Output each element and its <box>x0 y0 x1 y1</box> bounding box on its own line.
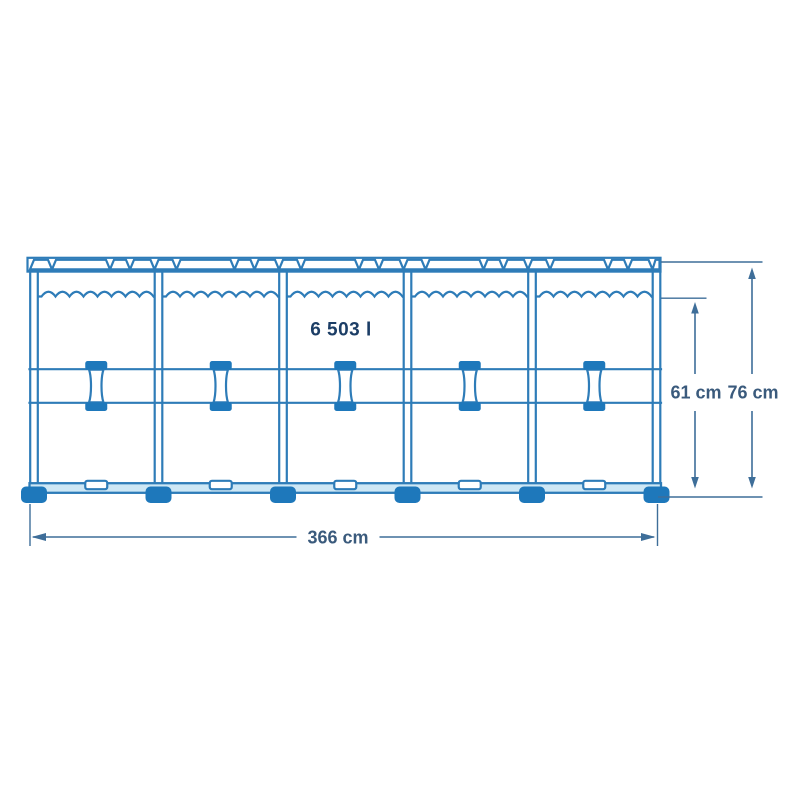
capacity-label: 6 503 l <box>310 320 372 341</box>
total-height-dimension: 76 cm <box>727 268 778 489</box>
rail-buckle <box>210 481 232 489</box>
pool-side-view-diagram: 6 503 l 366 cm 61 cm 76 cm <box>0 0 800 800</box>
pool-foot <box>644 487 670 504</box>
arrow-left-icon <box>32 533 47 541</box>
rail-buckle <box>583 481 605 489</box>
width-dimension-label: 366 cm <box>307 528 368 548</box>
t-joint <box>583 361 605 411</box>
water-height-dimension: 61 cm <box>670 302 721 489</box>
pool-foot <box>21 487 47 504</box>
water-line <box>289 292 403 297</box>
water-level-lines <box>40 292 652 297</box>
t-joint <box>210 361 232 411</box>
width-dimension: 366 cm <box>30 504 658 548</box>
pool-foot <box>395 487 421 504</box>
t-joint <box>334 361 356 411</box>
pool-frame: 6 503 l <box>21 258 670 503</box>
arrow-up-icon <box>748 268 756 280</box>
rail-buckle <box>334 481 356 489</box>
pool-diagram-canvas: 6 503 l 366 cm 61 cm 76 cm <box>0 0 800 800</box>
water-line <box>40 292 154 297</box>
arrow-down-icon <box>691 477 699 489</box>
arrow-down-icon <box>748 477 756 489</box>
water-line <box>164 292 278 297</box>
rail-buckle <box>459 481 481 489</box>
arrow-right-icon <box>641 533 656 541</box>
t-joint <box>459 361 481 411</box>
height-extension-lines <box>658 262 763 497</box>
pool-foot <box>270 487 296 504</box>
water-height-label: 61 cm <box>670 383 721 403</box>
t-joint <box>85 361 107 411</box>
pool-foot <box>146 487 172 504</box>
total-height-label: 76 cm <box>727 383 778 403</box>
pool-foot <box>519 487 545 504</box>
arrow-up-icon <box>691 302 699 314</box>
water-line <box>538 292 652 297</box>
water-line <box>413 292 527 297</box>
rail-buckle <box>85 481 107 489</box>
